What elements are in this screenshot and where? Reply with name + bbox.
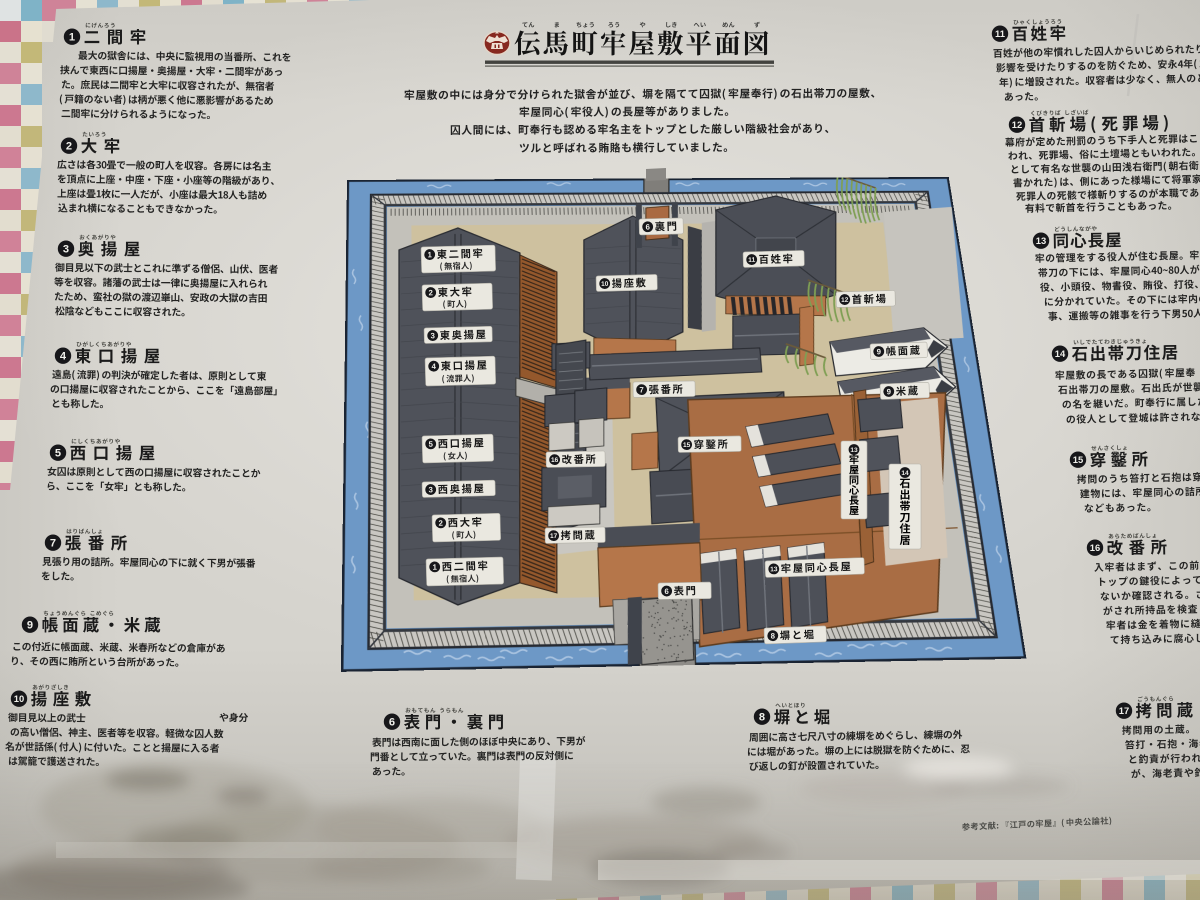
svg-text:13: 13 (850, 447, 858, 454)
svg-text:16: 16 (1090, 542, 1100, 553)
svg-text:11: 11 (748, 257, 755, 264)
svg-text:12: 12 (841, 297, 849, 304)
svg-text:7: 7 (639, 385, 644, 394)
svg-text:5: 5 (55, 448, 61, 460)
svg-text:10: 10 (14, 693, 24, 704)
svg-text:12: 12 (1012, 119, 1022, 130)
svg-text:2: 2 (66, 141, 72, 153)
svg-text:4: 4 (60, 351, 67, 363)
svg-text:8: 8 (759, 712, 765, 724)
svg-text:15: 15 (1073, 454, 1083, 465)
svg-text:7: 7 (50, 538, 56, 550)
svg-text:13: 13 (770, 566, 778, 573)
svg-text:17: 17 (1119, 705, 1129, 716)
svg-text:16: 16 (551, 457, 559, 464)
svg-text:14: 14 (901, 470, 909, 477)
svg-text:14: 14 (1055, 348, 1066, 359)
svg-text:1: 1 (69, 32, 75, 44)
svg-text:3: 3 (63, 244, 69, 256)
svg-text:17: 17 (550, 533, 558, 540)
svg-text:9: 9 (27, 620, 33, 632)
svg-text:10: 10 (601, 281, 609, 288)
svg-text:13: 13 (1036, 235, 1046, 246)
svg-text:6: 6 (389, 717, 395, 729)
svg-text:11: 11 (995, 28, 1005, 39)
svg-text:15: 15 (683, 442, 691, 449)
